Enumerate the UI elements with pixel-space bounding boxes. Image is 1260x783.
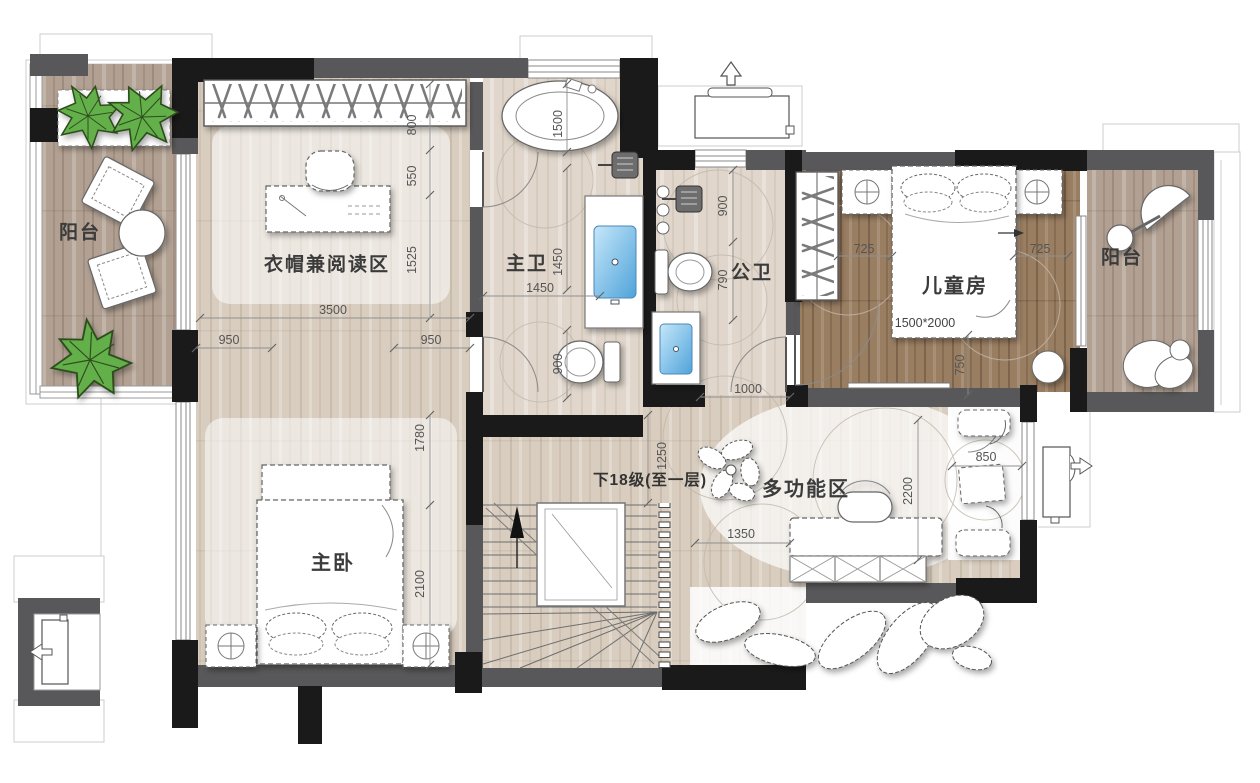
ac-unit-bottom-left bbox=[30, 614, 100, 690]
kids-nightstand-left bbox=[842, 170, 892, 214]
reading-desk bbox=[266, 186, 390, 232]
window-niche-right bbox=[1022, 422, 1034, 520]
window-partition-balcony bbox=[176, 154, 190, 330]
bedroom-nightstand-right bbox=[403, 625, 449, 667]
master-bed bbox=[257, 500, 403, 664]
window-balcony-right bbox=[1198, 218, 1212, 332]
kids-wardrobe bbox=[796, 172, 838, 300]
kids-nightstand-right bbox=[1012, 170, 1062, 214]
window-bedroom-left bbox=[176, 402, 190, 640]
niche-set bbox=[956, 410, 1010, 556]
water-heater-right bbox=[1043, 447, 1092, 523]
window-master-bath-top bbox=[528, 60, 620, 78]
toilet-master bbox=[557, 341, 620, 383]
bedroom-nightstand-left bbox=[206, 625, 256, 667]
floor-plan: 阳台 衣帽兼阅读区 主卫 公卫 儿童房 阳台 主卧 下18级(至一层) 多功能区… bbox=[0, 0, 1260, 783]
window-public-bath-top bbox=[695, 150, 746, 167]
vanity-public bbox=[652, 312, 700, 384]
stair-void bbox=[537, 503, 625, 606]
shelf-circles bbox=[657, 186, 669, 234]
ac-unit-top bbox=[695, 62, 794, 138]
vanity-master bbox=[585, 196, 643, 328]
stair-railing bbox=[657, 503, 671, 668]
kids-stool bbox=[1032, 351, 1064, 383]
kids-slide-door-line bbox=[848, 383, 950, 388]
floor-plan-drawing bbox=[0, 0, 1260, 783]
bed-headboard bbox=[262, 465, 390, 503]
balcony-round-table bbox=[119, 210, 165, 256]
kids-bed bbox=[892, 166, 1016, 338]
toilet-public bbox=[655, 250, 712, 294]
vent-arrow-up-icon bbox=[721, 62, 741, 85]
sliding-door-kids-balcony bbox=[1076, 216, 1086, 346]
reading-chair bbox=[306, 151, 354, 191]
